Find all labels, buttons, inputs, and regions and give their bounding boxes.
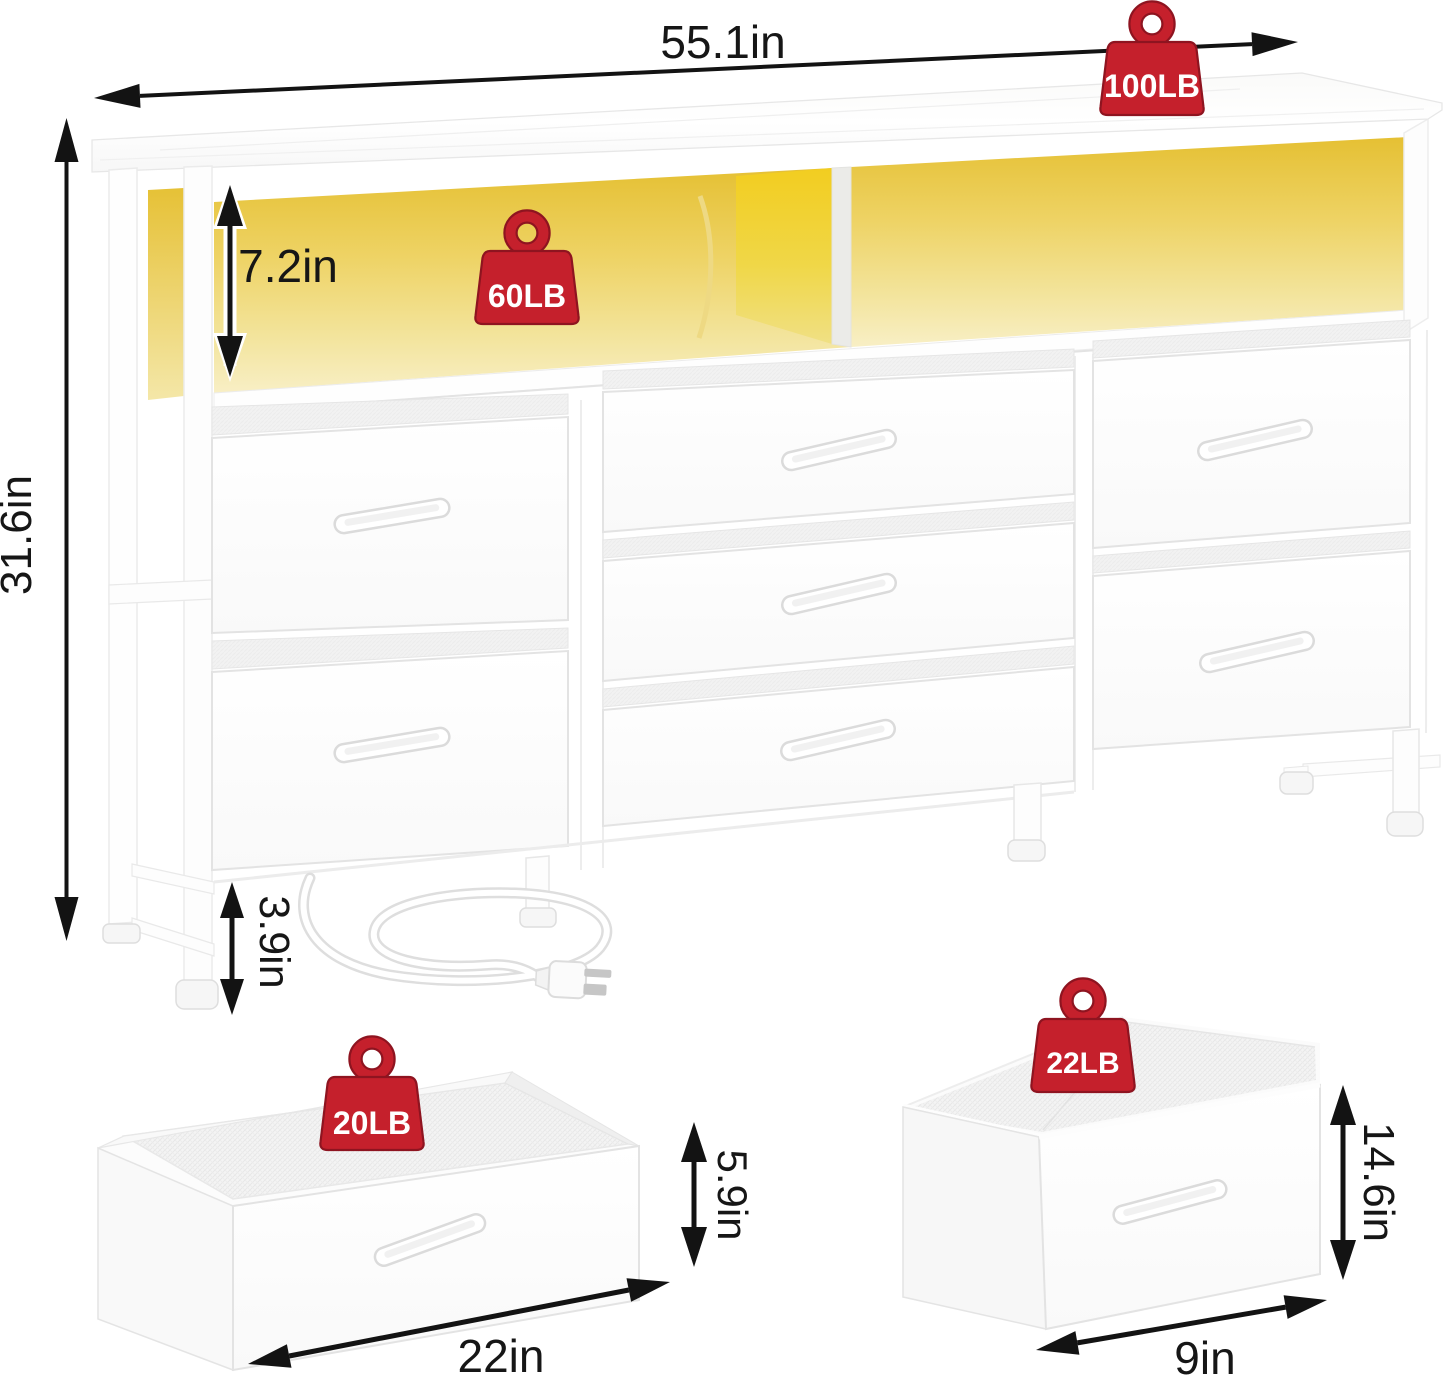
svg-text:60LB: 60LB [488,278,566,314]
svg-text:31.6in: 31.6in [0,475,41,595]
svg-text:100LB: 100LB [1104,68,1200,104]
svg-text:55.1in: 55.1in [660,16,785,68]
svg-text:20LB: 20LB [333,1105,411,1141]
svg-text:9in: 9in [1174,1332,1235,1379]
svg-text:22in: 22in [458,1330,545,1379]
svg-text:3.9in: 3.9in [250,895,298,988]
svg-text:22LB: 22LB [1046,1047,1119,1080]
svg-text:7.2in: 7.2in [238,240,338,292]
svg-text:5.9in: 5.9in [709,1149,756,1240]
svg-text:14.6in: 14.6in [1354,1122,1403,1242]
